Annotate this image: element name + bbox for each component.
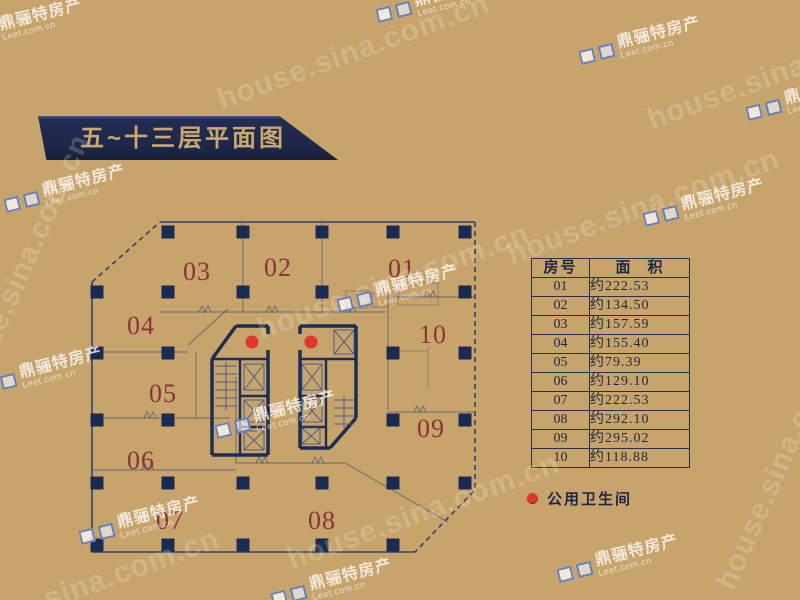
- area-value-cell: 约157.59: [590, 316, 690, 335]
- table-row: 07约222.53: [532, 392, 690, 411]
- restroom-marker: [305, 336, 318, 349]
- room-number-cell: 05: [532, 354, 590, 373]
- area-value-cell: 约129.10: [590, 373, 690, 392]
- room-label-05: 05: [149, 379, 177, 408]
- table-row: 01约222.53: [532, 278, 690, 297]
- room-label-06: 06: [127, 446, 155, 475]
- table-row: 09约295.02: [532, 430, 690, 449]
- room-number-cell: 04: [532, 335, 590, 354]
- table-row: 03约157.59: [532, 316, 690, 335]
- room-label-07: 07: [156, 506, 184, 535]
- room-number-cell: 02: [532, 297, 590, 316]
- room-number-cell: 08: [532, 411, 590, 430]
- table-row: 05约79.39: [532, 354, 690, 373]
- area-value-cell: 约222.53: [590, 392, 690, 411]
- legend-label: 公用卫生间: [547, 488, 632, 509]
- room-number-cell: 07: [532, 392, 590, 411]
- room-label-03: 03: [183, 257, 211, 286]
- restroom-marker: [246, 336, 259, 349]
- col-header-room: 房号: [532, 259, 590, 278]
- table-header-row: 房号 面 积: [532, 259, 690, 278]
- room-number-cell: 01: [532, 278, 590, 297]
- room-number-cell: 10: [532, 449, 590, 468]
- room-label-10: 10: [419, 320, 447, 349]
- area-value-cell: 约155.40: [590, 335, 690, 354]
- table-row: 02约134.50: [532, 297, 690, 316]
- table-row: 08约292.10: [532, 411, 690, 430]
- area-value-cell: 约222.53: [590, 278, 690, 297]
- core-left: [212, 326, 268, 455]
- area-value-cell: 约79.39: [590, 354, 690, 373]
- legend: 公用卫生间: [527, 488, 632, 509]
- floorplan-page: 01 02 03 04 05 06 07 08 09 10 五~十三层平面图 房…: [0, 0, 800, 600]
- room-labels: 01 02 03 04 05 06 07 08 09 10: [127, 253, 447, 535]
- table-row: 06约129.10: [532, 373, 690, 392]
- area-table: 房号 面 积 01约222.53 02约134.50 03约157.59 04约…: [531, 258, 690, 468]
- room-label-01: 01: [388, 254, 416, 283]
- area-value-cell: 约134.50: [590, 297, 690, 316]
- room-number-cell: 06: [532, 373, 590, 392]
- restroom-legend-dot: [527, 493, 538, 504]
- area-value-cell: 约295.02: [590, 430, 690, 449]
- table-row: 04约155.40: [532, 335, 690, 354]
- table-row: 10约118.88: [532, 449, 690, 468]
- room-label-02: 02: [264, 253, 292, 282]
- area-value-cell: 约118.88: [590, 449, 690, 468]
- area-value-cell: 约292.10: [590, 411, 690, 430]
- core-right: [300, 326, 356, 448]
- room-number-cell: 09: [532, 430, 590, 449]
- room-label-04: 04: [127, 311, 155, 340]
- room-label-09: 09: [417, 414, 445, 443]
- room-label-08: 08: [308, 506, 336, 535]
- room-number-cell: 03: [532, 316, 590, 335]
- col-header-area: 面 积: [590, 259, 690, 278]
